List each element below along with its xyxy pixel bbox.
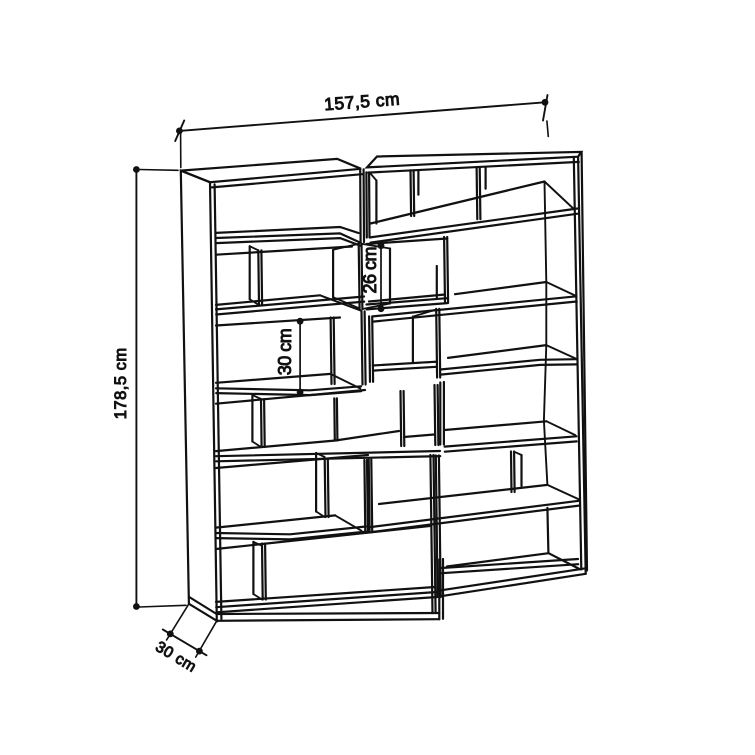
svg-text:178,5 cm: 178,5 cm [112, 347, 130, 419]
svg-text:26 cm: 26 cm [360, 247, 380, 294]
svg-text:30 cm: 30 cm [275, 329, 295, 376]
